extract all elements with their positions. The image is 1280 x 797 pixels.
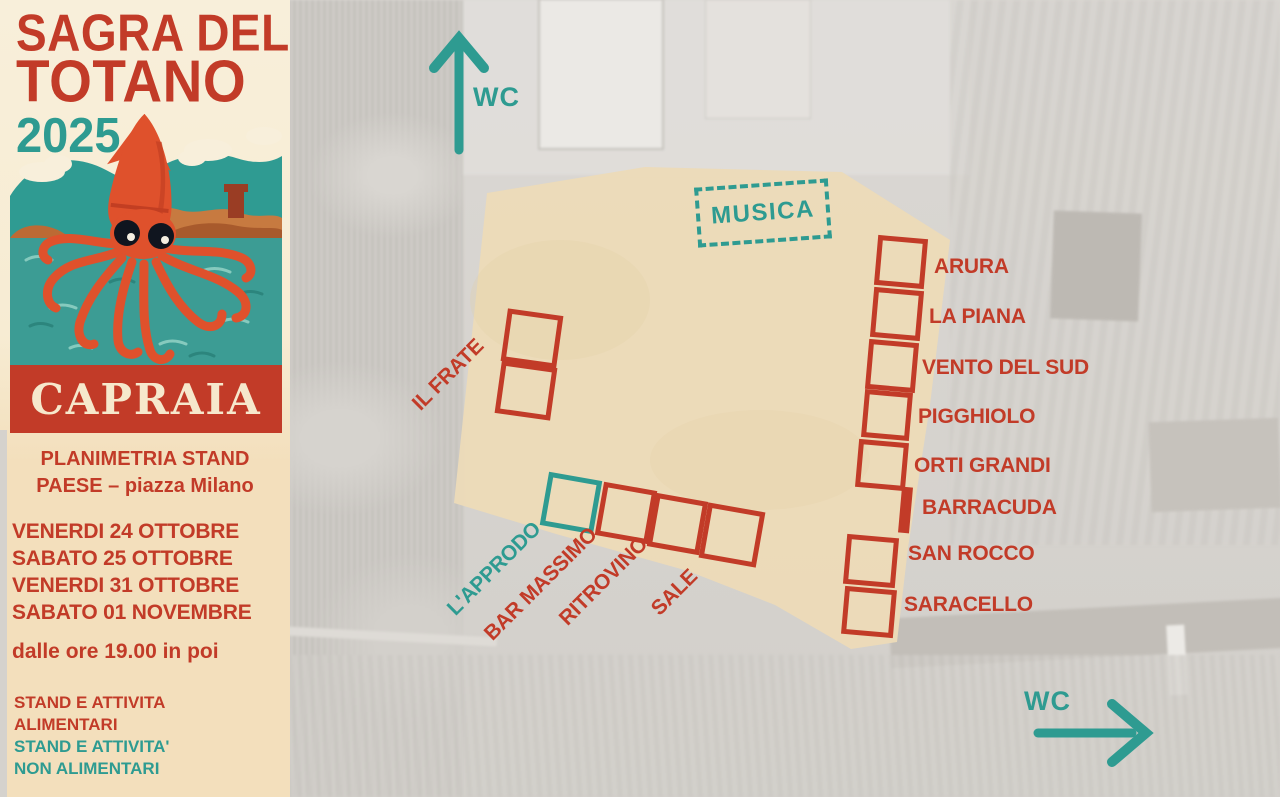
squid-poster-illustration [10, 112, 282, 365]
legend-nonfood-line1: STAND E ATTIVITA' [14, 736, 169, 758]
stand-label-la-piana: LA PIANA [929, 306, 1026, 328]
wc-top-label: WC [473, 82, 520, 113]
stand-label-san-rocco: SAN ROCCO [908, 543, 1035, 565]
stand-box-vento-del-sud [865, 339, 919, 393]
event-date: SABATO 01 NOVEMBRE [12, 599, 252, 626]
plan-subtitle-line1: PLANIMETRIA STAND [0, 446, 290, 473]
stand-box-arura [874, 235, 928, 289]
festival-map-page: WC WC MUSICA ARURA LA PIANA VENTO DEL SU… [0, 0, 1280, 797]
music-stage-box: MUSICA [694, 178, 832, 247]
stand-box-il-frate-1 [501, 308, 564, 368]
event-date: SABATO 25 OTTOBRE [12, 545, 252, 572]
stand-label-pigghiolo: PIGGHIOLO [918, 406, 1035, 428]
photo-edge-sliver [0, 430, 7, 797]
piazza-shade [470, 240, 650, 360]
stand-box-pigghiolo [861, 389, 913, 441]
stand-label-arura: ARURA [934, 256, 1009, 278]
stand-label-orti-grandi: ORTI GRANDI [914, 455, 1051, 477]
event-date: VENERDI 31 OTTOBRE [12, 572, 252, 599]
stand-box-ritrovino [647, 493, 709, 555]
stand-box-l-approdo [540, 472, 603, 535]
time-note: dalle ore 19.00 in poi [12, 640, 219, 664]
event-date: VENERDI 24 OTTOBRE [12, 518, 252, 545]
piazza-shade [650, 410, 870, 510]
music-stage-label: MUSICA [710, 195, 815, 230]
stand-box-orti-grandi [855, 439, 909, 491]
poster-place-label: CAPRAIA [30, 375, 261, 424]
event-poster-sidebar: SAGRA DEL TOTANO 2025 [0, 0, 290, 797]
legend-food-line1: STAND E ATTIVITA [14, 692, 169, 714]
legend-food-line2: ALIMENTARI [14, 714, 169, 736]
legend: STAND E ATTIVITA ALIMENTARI STAND E ATTI… [14, 692, 169, 780]
stand-label-vento-del-sud: VENTO DEL SUD [922, 357, 1089, 379]
plan-subtitle: PLANIMETRIA STAND PAESE – piazza Milano [0, 446, 290, 500]
stand-box-sale [699, 502, 766, 567]
stand-label-barracuda: BARRACUDA [922, 497, 1057, 519]
plan-subtitle-line2: PAESE – piazza Milano [0, 473, 290, 500]
event-dates: VENERDI 24 OTTOBRE SABATO 25 OTTOBRE VEN… [12, 518, 252, 626]
stand-box-san-rocco [843, 534, 899, 588]
stand-label-saracello: SARACELLO [904, 594, 1033, 616]
event-title-line2: TOTANO [16, 52, 246, 111]
stand-box-il-frate-2 [495, 360, 558, 420]
stand-box-saracello [841, 586, 897, 638]
legend-nonfood-line2: NON ALIMENTARI [14, 758, 169, 780]
wc-bottom-label: WC [1024, 686, 1071, 717]
poster-place-band: CAPRAIA [10, 365, 282, 433]
stand-box-la-piana [870, 287, 924, 341]
